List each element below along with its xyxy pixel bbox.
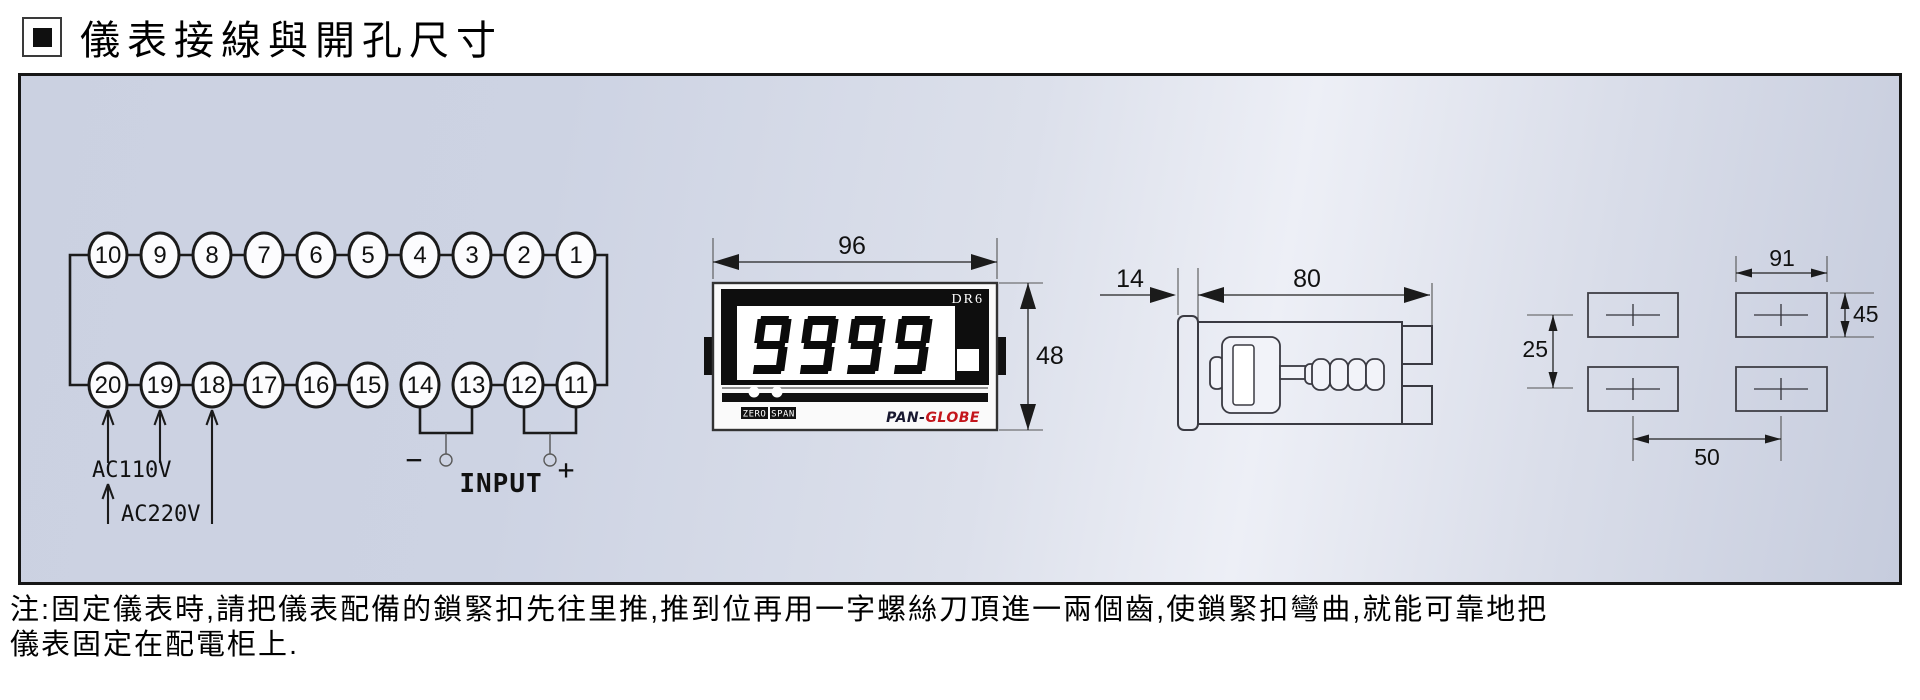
terminal-number: 15 [355, 372, 382, 399]
terminal-number: 5 [361, 242, 374, 269]
ac220v-label: AC220V [121, 502, 200, 527]
spring-coil [1312, 359, 1330, 390]
model-label: DR6 [952, 292, 984, 307]
terminal-number: 13 [459, 372, 486, 399]
latch-slot [1233, 345, 1254, 405]
spring-coil [1366, 359, 1384, 390]
arrowhead-left-icon [1633, 435, 1649, 444]
terminal-number: 10 [95, 242, 122, 269]
terminal-number: 20 [95, 372, 122, 399]
zero-button-label: ZERO [743, 410, 767, 420]
led-indicator [772, 387, 783, 398]
dim-label-45: 45 [1853, 301, 1879, 327]
plus-sign: + [558, 453, 575, 486]
meter-front-view: DR6 ZERO SPAN PAN-GLOBE 96 48 [704, 232, 1064, 430]
dim-cutout-hspacing-50: 50 [1633, 416, 1781, 470]
terminal-number: 4 [413, 242, 426, 269]
diagram-panel: 10 9 8 7 6 5 4 3 2 1 20 19 18 17 16 15 1… [18, 73, 1902, 585]
section-bullet-icon [22, 17, 62, 57]
brand-logo-dark: PAN- [886, 410, 925, 426]
dim-label-96: 96 [838, 232, 866, 260]
arrowhead-down-icon [1841, 321, 1850, 337]
side-bezel-flange [1178, 316, 1198, 430]
input-plus-terminal [544, 454, 556, 466]
ac110v-label: AC110V [92, 458, 171, 483]
dim-width-96: 96 [713, 232, 997, 279]
arrowhead-left-icon [1198, 287, 1224, 303]
terminal-number: 7 [257, 242, 270, 269]
brand-logo-red: GLOBE [925, 410, 980, 426]
terminal-number: 11 [564, 372, 589, 399]
terminal-number: 2 [517, 242, 530, 269]
dim-cutout-vspacing-25: 25 [1522, 315, 1573, 388]
arrowhead-left-icon [713, 254, 739, 270]
terminal-number: 6 [309, 242, 322, 269]
terminal-number: 3 [465, 242, 478, 269]
led-indicator [749, 387, 760, 398]
arrowhead-up-icon [1841, 293, 1850, 309]
arrowhead-down-icon [1549, 372, 1558, 388]
terminal-number: 17 [251, 372, 278, 399]
side-terminal-block-bottom [1402, 386, 1432, 424]
input-minus-terminal [440, 454, 452, 466]
arrowhead-right-icon [1811, 269, 1827, 278]
terminal-number: 14 [407, 372, 434, 399]
arrowhead-left-icon [1736, 269, 1752, 278]
dim-label-25: 25 [1522, 336, 1548, 362]
terminal-number: 8 [205, 242, 218, 269]
input-label: INPUT [459, 469, 542, 499]
section-header: 儀表接線與開孔尺寸 [22, 8, 503, 66]
arrowhead-down-icon [1020, 404, 1036, 430]
panel-cutout-view: 91 45 25 50 [1522, 245, 1878, 470]
dim-label-48: 48 [1036, 342, 1064, 370]
page-title: 儀表接線與開孔尺寸 [80, 8, 503, 66]
terminal-wiring-diagram: 10 9 8 7 6 5 4 3 2 1 20 19 18 17 16 15 1… [70, 233, 607, 527]
side-terminal-block-top [1402, 326, 1432, 364]
installation-note: 注:固定儀表時,請把儀表配備的鎖緊扣先往里推,推到位再用一字螺絲刀頂進一兩個齒,… [10, 593, 1910, 664]
display-indicator-square [957, 349, 979, 371]
spring-coil [1330, 359, 1348, 390]
terminal-number: 18 [199, 372, 226, 399]
diagram-canvas: 10 9 8 7 6 5 4 3 2 1 20 19 18 17 16 15 1… [21, 76, 1899, 582]
dim-label-91: 91 [1769, 245, 1795, 271]
arrowhead-up-icon [1549, 315, 1558, 331]
arrowhead-right-icon [1765, 435, 1781, 444]
spring-coil [1348, 359, 1366, 390]
arrowhead-right-icon [1150, 287, 1176, 303]
dim-label-14: 14 [1116, 265, 1144, 293]
arrowhead-right-icon [1404, 287, 1430, 303]
terminal-number: 12 [511, 372, 538, 399]
input-stub-wires [446, 433, 550, 454]
dim-label-80: 80 [1293, 265, 1321, 293]
span-button-label: SPAN [771, 410, 795, 420]
meter-side-view: 14 80 [1100, 265, 1432, 430]
terminal-number: 19 [147, 372, 174, 399]
dim-cutout-width-91: 91 [1736, 245, 1827, 282]
dim-height-48: 48 [999, 283, 1064, 430]
terminal-number: 9 [153, 242, 166, 269]
cutout-crosshairs [1606, 304, 1808, 400]
arrowhead-up-icon [1020, 283, 1036, 309]
lower-black-strip [722, 393, 988, 402]
arrowhead-right-icon [971, 254, 997, 270]
terminal-number: 1 [569, 242, 582, 269]
minus-sign: − [406, 443, 423, 476]
dim-cutout-height-45: 45 [1830, 293, 1879, 337]
dim-label-50: 50 [1694, 444, 1720, 470]
terminal-number: 16 [303, 372, 330, 399]
brand-logo: PAN-GLOBE [886, 410, 980, 426]
